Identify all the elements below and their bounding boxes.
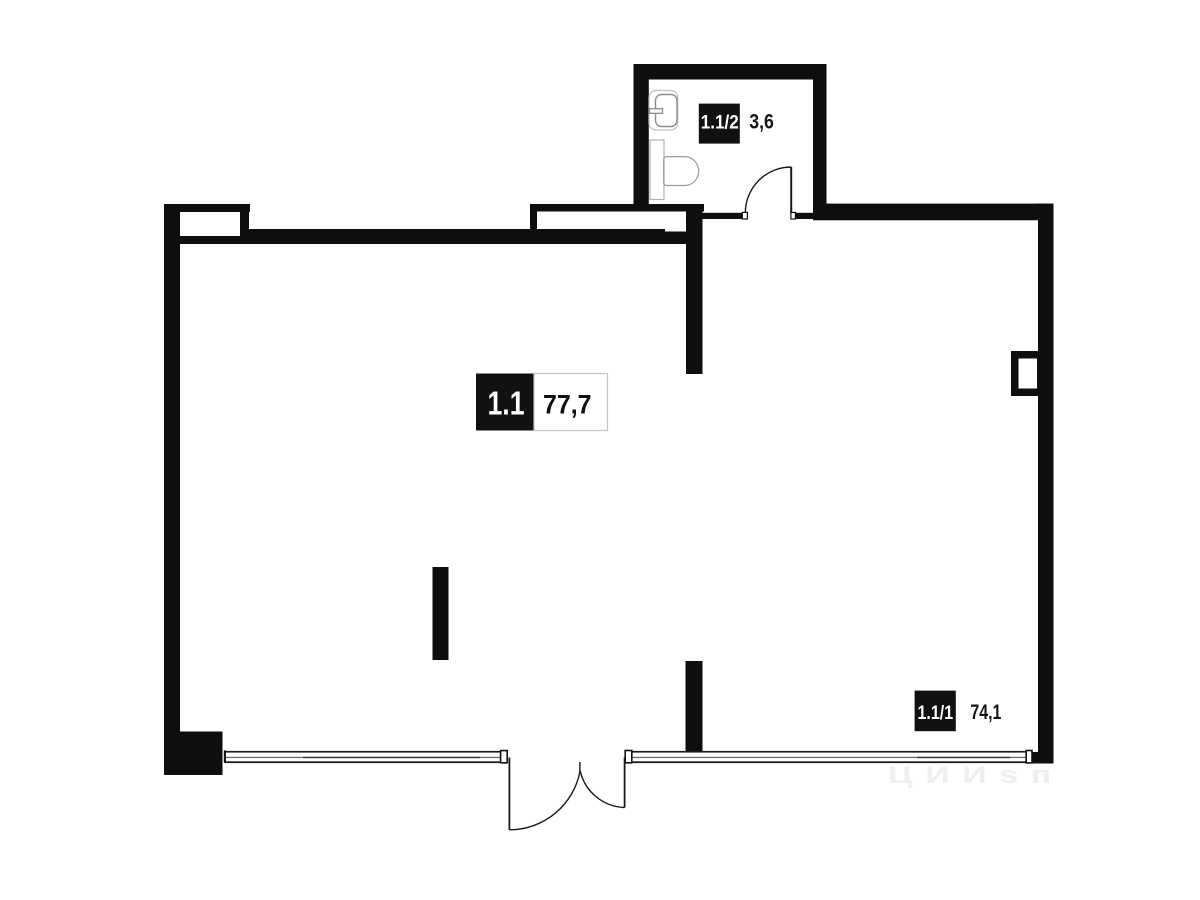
svg-text:ЦИИsп: ЦИИsп	[888, 762, 1064, 789]
svg-text:1.1/1: 1.1/1	[918, 703, 954, 724]
svg-text:1.1: 1.1	[488, 385, 525, 422]
svg-text:3,6: 3,6	[749, 111, 774, 134]
svg-text:74,1: 74,1	[970, 701, 1001, 724]
svg-text:77,7: 77,7	[543, 390, 592, 420]
svg-text:1.1/2: 1.1/2	[701, 112, 739, 133]
